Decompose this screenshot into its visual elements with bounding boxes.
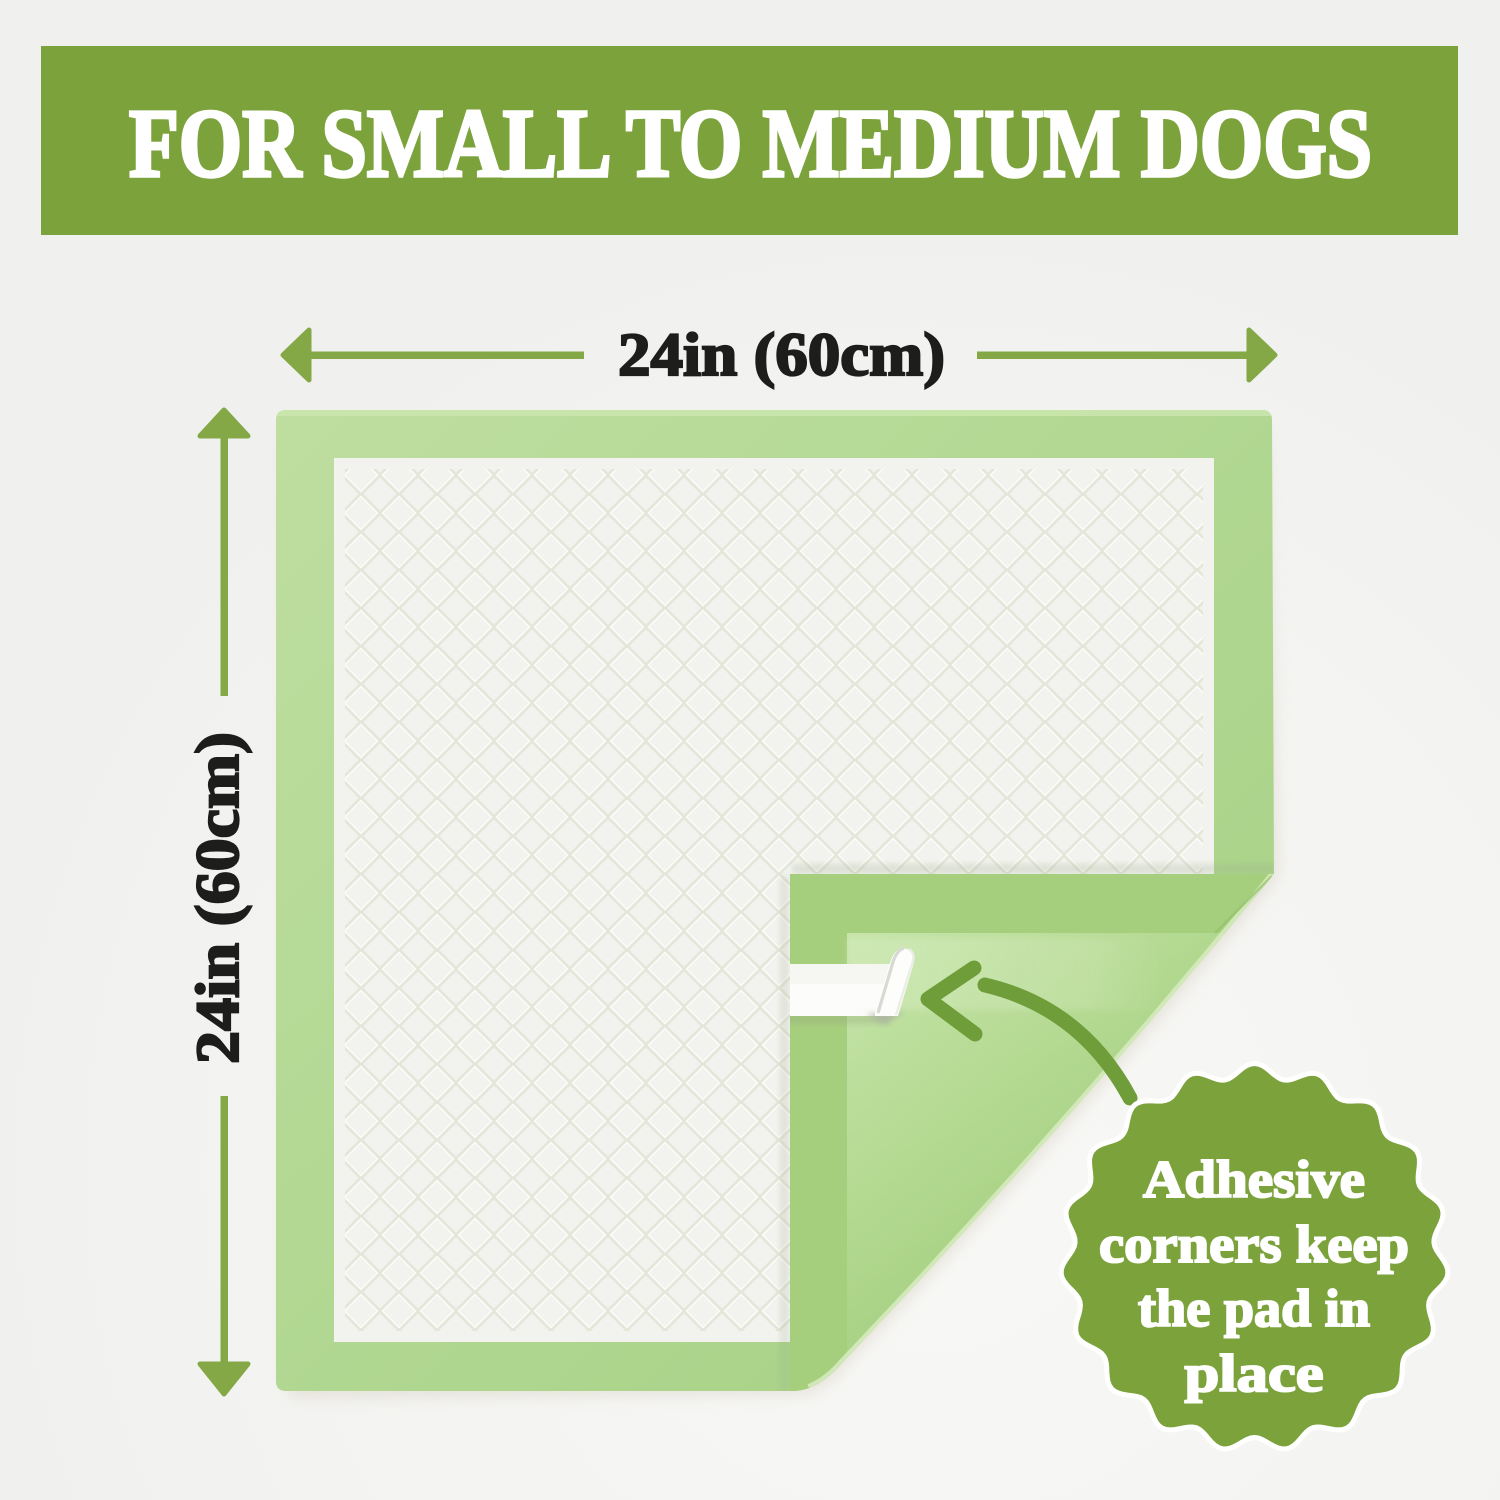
svg-text:corners keep: corners keep xyxy=(1099,1216,1409,1274)
svg-text:place: place xyxy=(1185,1345,1324,1403)
svg-text:FOR SMALL TO MEDIUM DOGS: FOR SMALL TO MEDIUM DOGS xyxy=(129,90,1372,198)
svg-text:24in (60cm): 24in (60cm) xyxy=(618,322,945,389)
svg-text:the pad in: the pad in xyxy=(1138,1280,1370,1338)
svg-text:24in (60cm): 24in (60cm) xyxy=(185,732,252,1064)
svg-text:Adhesive: Adhesive xyxy=(1143,1151,1365,1209)
